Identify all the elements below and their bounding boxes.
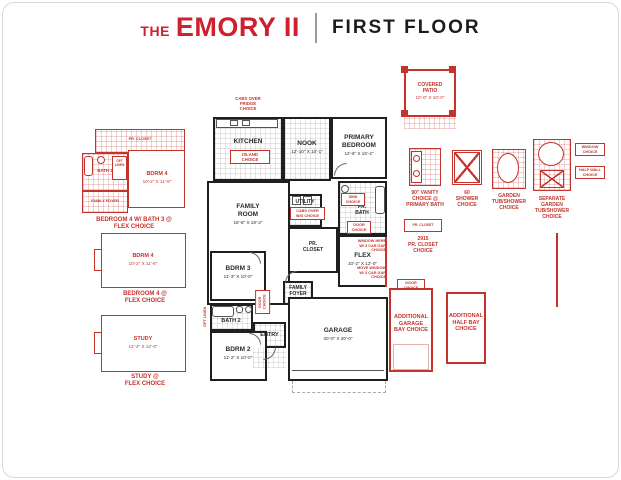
label-bath2: BATH 2 (213, 318, 249, 325)
family-dims: 16'-8" X 19'-2" (218, 220, 278, 226)
prcloset-caption: 2915 PR. CLOSET CHOICE (398, 236, 448, 254)
opt1-caption: BEDROOM 4 W/ BATH 3 @ FLEX CHOICE (78, 217, 190, 231)
label-cabs-over-fridge: CABS OVER FRIDGE CHOICE (227, 96, 269, 111)
primary-name: PRIMARY BEDROOM (342, 134, 376, 149)
opt3-study-label: STUDY12'-4" X 12'-0" (110, 336, 176, 349)
bath2-tub-icon (212, 306, 234, 317)
opt3-closet-nub (94, 332, 102, 354)
label-primary-closet: PR. CLOSET (295, 241, 331, 253)
label-flex: FLEX10'-2" X 12'-0" (340, 252, 385, 266)
floor-label: FIRST FLOOR (332, 17, 481, 39)
opt1-linen-label: OPT LINEN (112, 160, 127, 168)
garage-name: GARAGE (324, 327, 353, 334)
title-divider (315, 13, 317, 43)
separate-halfwall-note: HALF WALL CHOICE (575, 166, 605, 179)
label-bdrm3: BDRM 311'-3" X 10'-0" (213, 265, 263, 279)
prcloset-label: PR. CLOSET (404, 223, 442, 227)
patio-dims: 10'-0" X 10'-0" (406, 95, 454, 101)
garage-dims: 20'-0" X 20'-0" (310, 336, 366, 342)
nook-dims: 12'-10" X 10'-1" (283, 149, 331, 155)
separate-shower-icon (540, 170, 564, 188)
label-family-room: FAMILY ROOM16'-8" X 19'-2" (218, 203, 278, 225)
garden-caption: GARDEN TUB/SHOWER CHOICE (485, 193, 533, 211)
title-name: EMORY II (176, 12, 300, 43)
label-utility-cabs-note: CABS OVER W/D CHOICE (290, 207, 325, 220)
nook-name: NOOK (297, 140, 317, 147)
patio-label: COVERED PATIO10'-0" X 10'-0" (406, 82, 454, 101)
label-hall-door-choice: DOOR CHOICE (255, 290, 270, 314)
floorplan-page: THE EMORY II FIRST FLOOR (0, 0, 621, 480)
label-bath2-linen-note: OPT LINEN (203, 306, 208, 328)
opt1-bdrm4-dims: 10'-2" X 11'-8" (132, 179, 182, 185)
opt1-bdrm4-label: BDRM 410'-2" X 11'-8" (132, 171, 182, 184)
opt2-caption: BEDROOM 4 @ FLEX CHOICE (95, 291, 195, 305)
primary-dims: 12'-6" X 15'-2" (333, 151, 385, 157)
opt3-study-name: STUDY (134, 336, 153, 342)
bath2-toilet-icon (236, 306, 243, 313)
label-bdrm2: BDRM 211'-2" X 10'-0" (213, 346, 263, 360)
label-kitchen: KITCHEN (216, 138, 280, 146)
label-garage: GARAGE20'-0" X 20'-0" (310, 327, 366, 341)
separate-caption: SEPARATE GARDEN TUB/SHOWER CHOICE (528, 196, 576, 220)
label-family-foyer: FAMILY FOYER (283, 285, 313, 297)
shower-pan-icon (454, 152, 480, 183)
vanity-sink-icon (413, 170, 420, 177)
opt1-toilet-icon (97, 156, 105, 164)
kitchen-sink-icon (230, 120, 238, 126)
patio-post (401, 110, 408, 117)
flex-name: FLEX (354, 252, 371, 259)
patio-deck-hatch (404, 117, 456, 129)
label-move-window-note: MOVE WINDOW W/ 3 CAR GAR CHOICE (350, 266, 386, 280)
label-utility: UTILITY (289, 199, 321, 205)
opt1-foyer-label: FAMILY FOYER (83, 199, 127, 204)
family-name: FAMILY ROOM (236, 203, 259, 218)
label-nook: NOOK12'-10" X 10'-1" (283, 140, 331, 154)
opt3-study-dims: 12'-4" X 12'-0" (110, 344, 176, 350)
label-door-choice-bath: DOOR CHOICE (347, 221, 371, 234)
header: THE EMORY II FIRST FLOOR (0, 12, 621, 43)
kitchen-cooktop-icon (242, 120, 250, 126)
opt1-pr-closet-label: PR. CLOSET (100, 137, 180, 142)
garden-tub-icon (497, 153, 519, 183)
label-entry: ENTRY (253, 332, 286, 339)
opt2-bdrm4-dims: 10'-2" X 11'-8" (110, 261, 176, 267)
wall-highlight-3car (556, 233, 558, 307)
garage-door-line (292, 370, 384, 371)
sink-icon (341, 185, 349, 193)
separate-window-note: WINDOW CHOICE (575, 143, 605, 156)
patio-post (449, 110, 456, 117)
bath2-sink-icon (245, 306, 252, 313)
bdrm2-name: BDRM 2 (226, 346, 251, 353)
garage-bay-caption: ADDITIONAL GARAGE BAY CHOICE (392, 314, 430, 334)
half-bay-caption: ADDITIONAL HALF BAY CHOICE (448, 313, 484, 333)
driveway-dashed (292, 381, 386, 393)
label-sink-choice: SINK CHOICE (341, 193, 365, 206)
label-primary-bedroom: PRIMARY BEDROOM12'-6" X 15'-2" (333, 134, 385, 156)
opt2-bdrm4-label: BDRM 410'-2" X 11'-8" (110, 253, 176, 266)
patio-post (401, 66, 408, 73)
opt1-bdrm4-name: BDRM 4 (146, 171, 167, 177)
label-island-choice: ISLAND CHOICE (230, 150, 270, 164)
bdrm3-dims: 11'-3" X 10'-0" (213, 274, 263, 280)
opt2-bdrm4-name: BDRM 4 (132, 253, 153, 259)
opt2-closet-nub (94, 249, 102, 271)
vanity-caption: 90" VANITY CHOICE @ PRIMARY BATH (399, 190, 451, 208)
bdrm3-name: BDRM 3 (226, 265, 251, 272)
shower-caption: 60 SHOWER CHOICE (447, 190, 487, 208)
patio-post (449, 66, 456, 73)
bdrm2-dims: 11'-2" X 10'-0" (213, 355, 263, 361)
label-window-here-note: WINDOW HERE W/ 3 CAR GAR CHOICE (353, 239, 386, 253)
title-prefix: THE (140, 23, 170, 39)
patio-name: COVERED PATIO (418, 82, 443, 94)
opt3-caption: STUDY @ FLEX CHOICE (95, 374, 195, 388)
garage-bay-door-panel (393, 344, 429, 370)
plan-title: THE EMORY II (140, 12, 300, 43)
separate-tub-icon (538, 142, 564, 166)
vanity-sink-icon (413, 155, 420, 162)
